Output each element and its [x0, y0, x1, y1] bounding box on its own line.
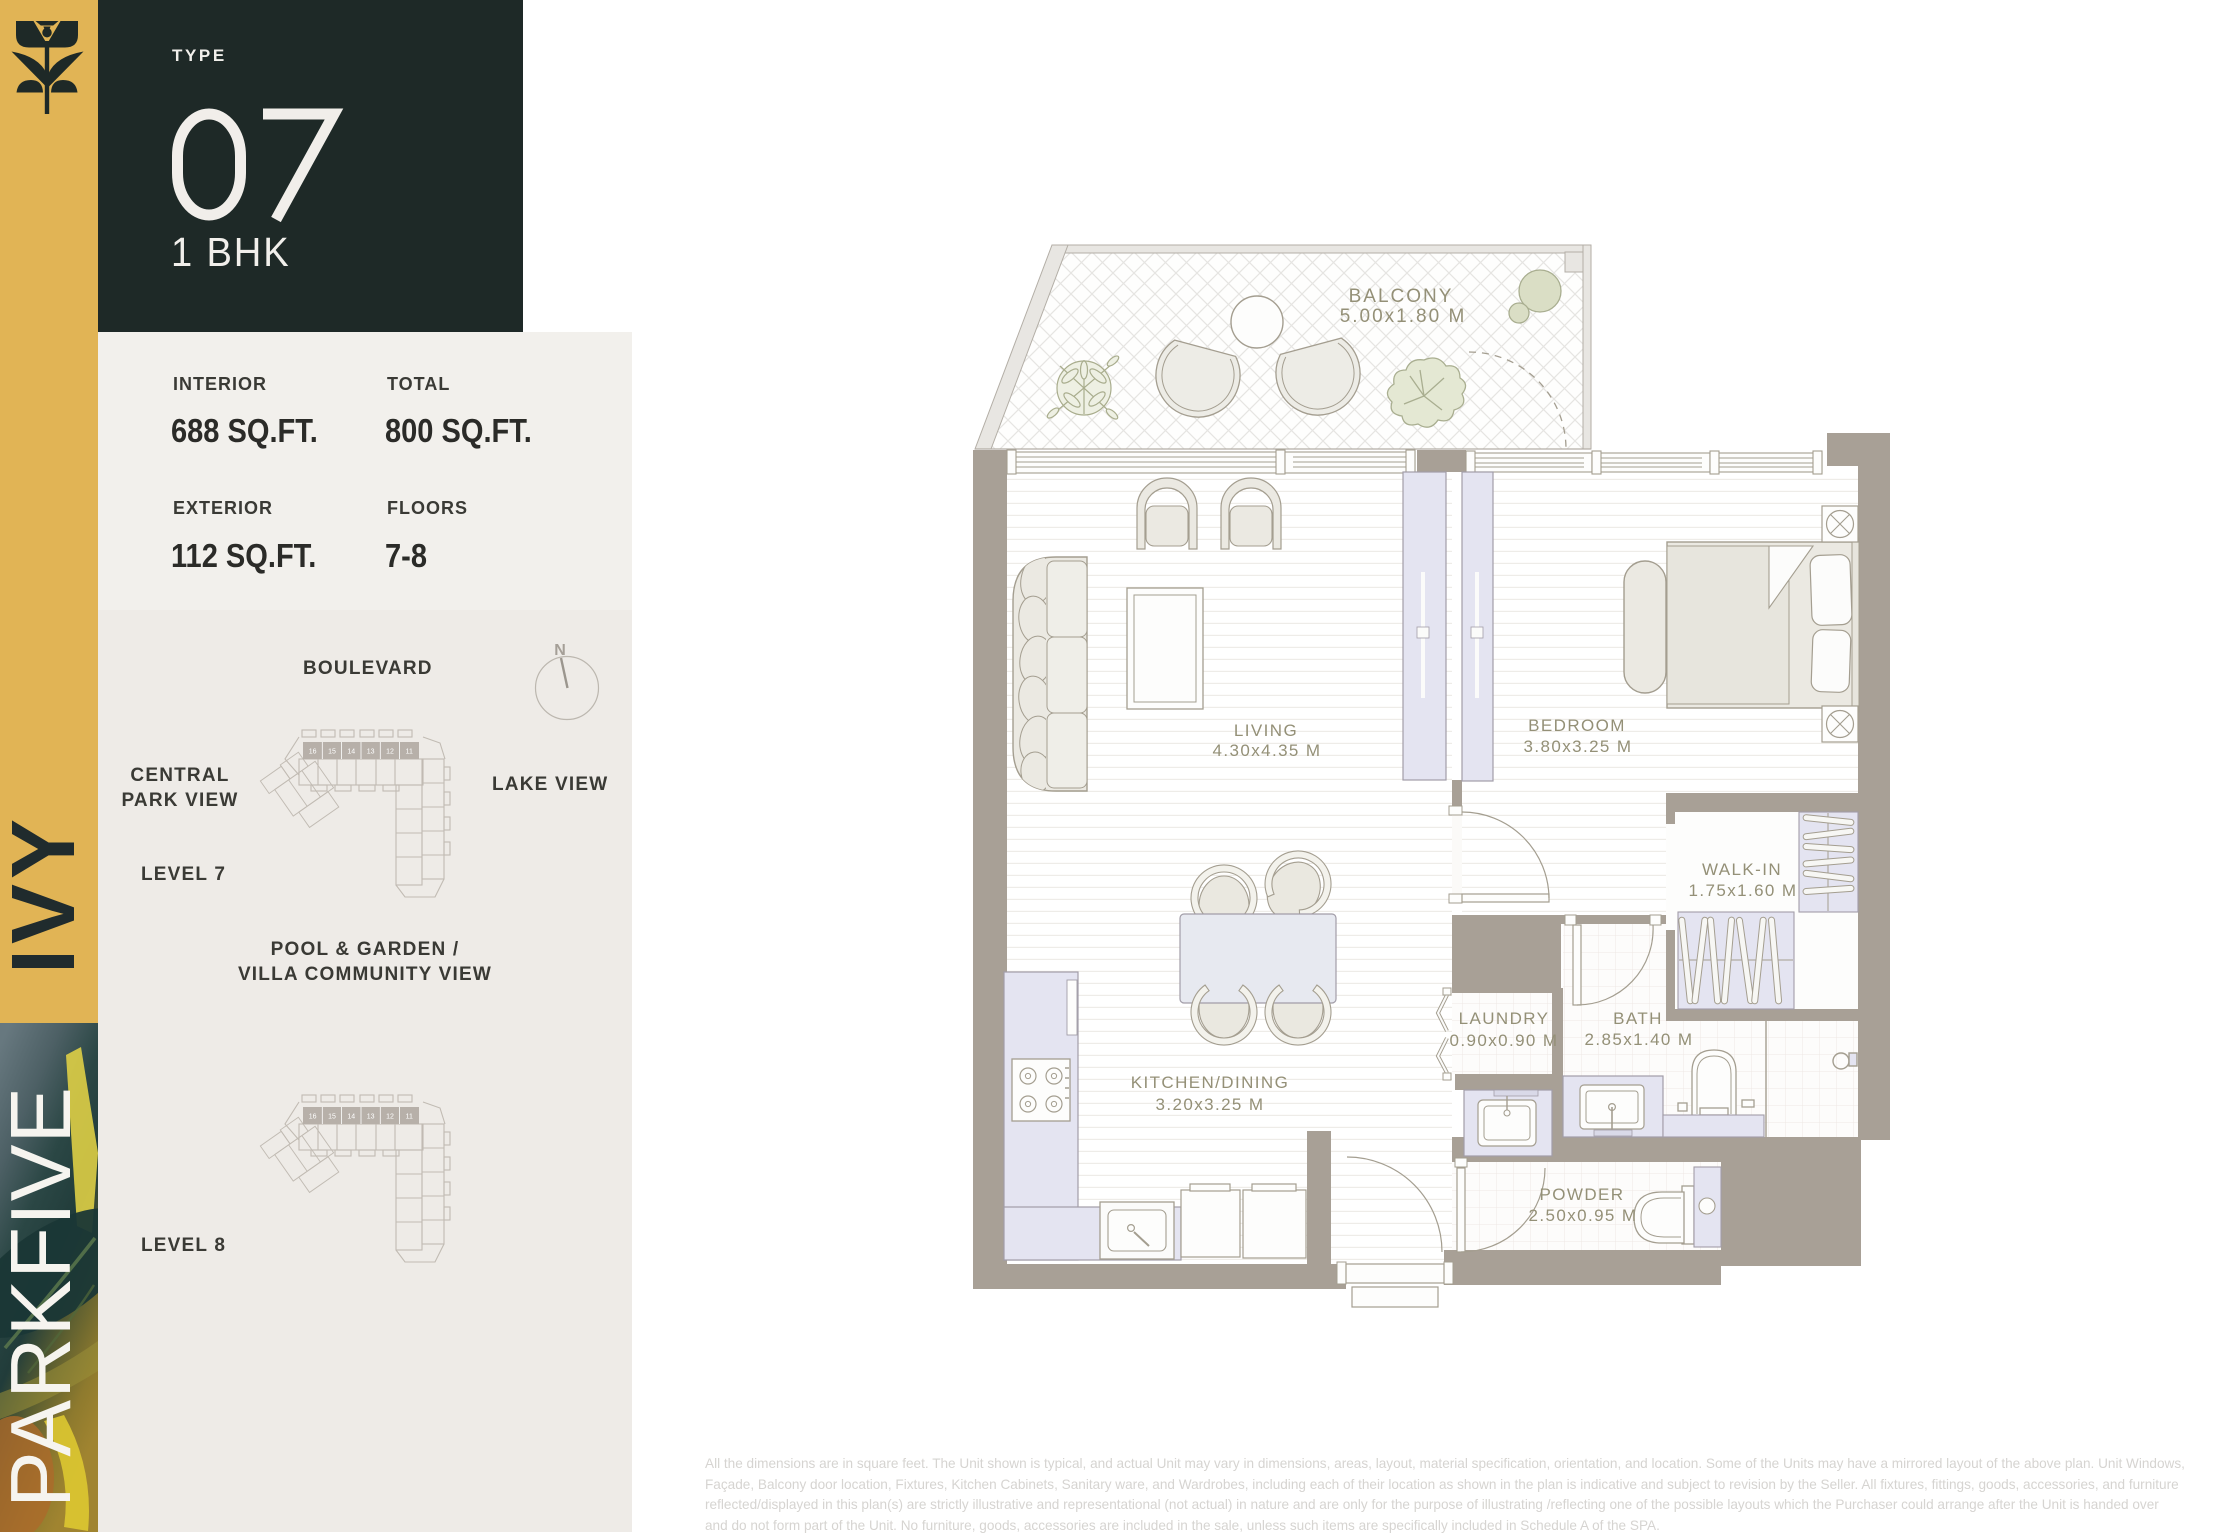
svg-text:BALCONY: BALCONY: [1349, 286, 1454, 307]
svg-text:POWDER: POWDER: [1540, 1185, 1625, 1204]
svg-text:3.80x3.25 M: 3.80x3.25 M: [1524, 737, 1633, 756]
svg-text:LAUNDRY: LAUNDRY: [1459, 1009, 1550, 1028]
svg-text:BEDROOM: BEDROOM: [1528, 716, 1626, 735]
svg-text:1.75x1.60 M: 1.75x1.60 M: [1689, 881, 1798, 900]
svg-text:2.50x0.95 M: 2.50x0.95 M: [1529, 1206, 1638, 1225]
svg-text:WALK-IN: WALK-IN: [1702, 860, 1782, 879]
svg-text:2.85x1.40 M: 2.85x1.40 M: [1585, 1030, 1694, 1049]
svg-text:4.30x4.35 M: 4.30x4.35 M: [1213, 741, 1322, 760]
svg-text:KITCHEN/DINING: KITCHEN/DINING: [1131, 1073, 1289, 1092]
svg-text:3.20x3.25 M: 3.20x3.25 M: [1156, 1095, 1265, 1114]
svg-text:5.00x1.80 M: 5.00x1.80 M: [1340, 306, 1467, 327]
svg-text:0.90x0.90 M: 0.90x0.90 M: [1450, 1031, 1559, 1050]
svg-text:LIVING: LIVING: [1234, 721, 1298, 740]
svg-text:BATH: BATH: [1613, 1009, 1663, 1028]
